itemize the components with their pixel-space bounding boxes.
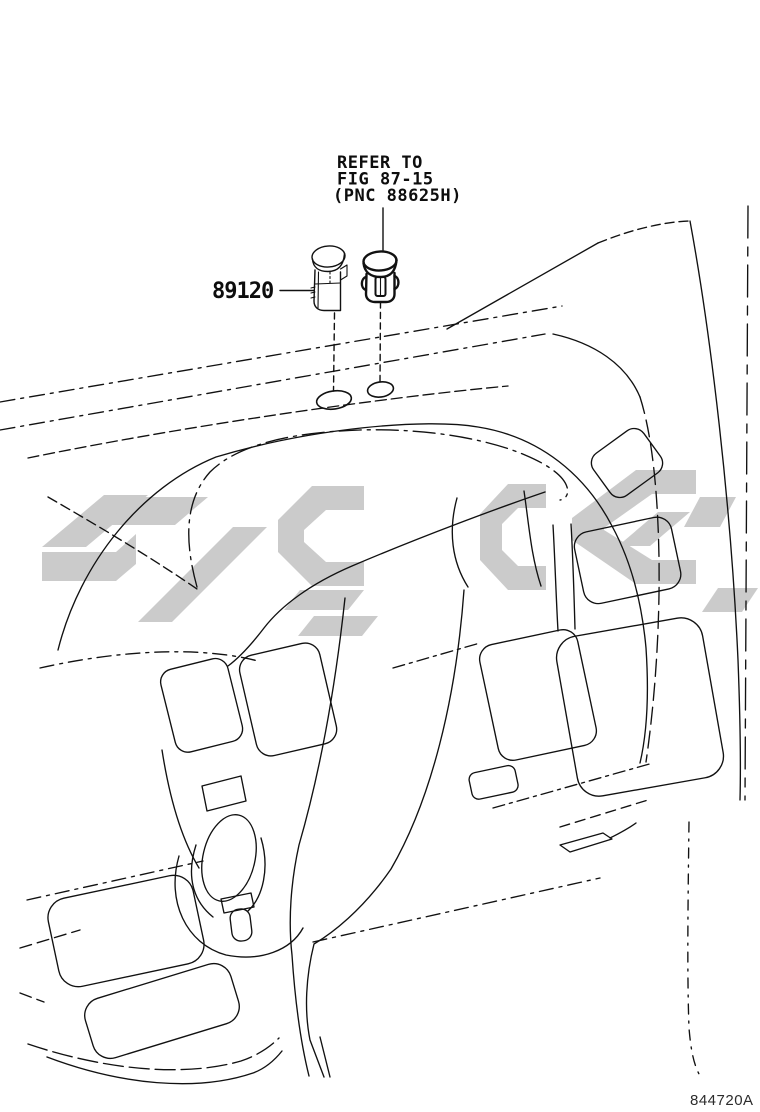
watermark-glyph <box>480 484 546 590</box>
watermark-glyph <box>138 527 267 622</box>
console-left-edge <box>290 598 345 1076</box>
sensor-cap-rim <box>313 254 345 272</box>
watermark-glyph <box>278 486 364 586</box>
trim-piece-edge <box>610 823 636 838</box>
dash-lower-line <box>493 763 653 808</box>
a-pillar-outer <box>745 206 748 800</box>
radio-opening <box>477 627 599 763</box>
knee-panel-lower <box>80 959 243 1063</box>
watermark-glyph <box>702 588 758 612</box>
left-dash-edge <box>40 652 258 668</box>
lower-cubby-opening <box>468 764 520 800</box>
center-pod-left <box>452 498 468 587</box>
kick-panel-line <box>20 930 80 948</box>
leader-line-dashed-right <box>380 302 381 383</box>
center-channel <box>553 525 558 631</box>
dashboard-line-art <box>0 206 748 1084</box>
sensor-part-drawing <box>311 245 347 311</box>
part-number-label: 89120 <box>212 279 273 304</box>
glove-box-opening <box>553 614 727 799</box>
callout-group <box>280 208 398 411</box>
watermark-glyph <box>284 590 364 610</box>
console-base-curve <box>28 1038 279 1070</box>
floor-line <box>560 800 648 827</box>
sensor-cap <box>311 245 345 268</box>
parts-diagram-canvas: REFER TO FIG 87-15 (PNC 88625H) 89120 84… <box>0 0 760 1112</box>
shift-boot-outer <box>175 856 303 957</box>
mounting-hole-right <box>367 380 395 398</box>
reference-note-line-3: (PNC 88625H) <box>333 186 462 206</box>
sensor-body-edge <box>318 272 319 308</box>
leader-line-dashed-left <box>334 313 335 391</box>
switch-opening <box>202 776 246 811</box>
windshield-corner <box>553 334 640 397</box>
mounting-hole-left <box>315 389 352 412</box>
clip-cap <box>363 251 397 272</box>
watermark-glyph <box>572 470 696 584</box>
watermark-logo <box>42 470 758 636</box>
shift-knob <box>194 809 264 906</box>
figure-code: 844720A <box>690 1092 754 1109</box>
sensor-tab <box>341 265 348 280</box>
dash-lower-line <box>393 643 480 668</box>
cluster-lower-edge <box>162 750 199 868</box>
console-base-curve <box>47 1051 282 1084</box>
parts-diagram-page: REFER TO FIG 87-15 (PNC 88625H) 89120 84… <box>0 0 760 1112</box>
dash-top-edge <box>28 386 508 458</box>
shift-stem <box>229 908 253 942</box>
kick-panel-line <box>20 993 44 1002</box>
console-right-edge <box>307 590 464 1077</box>
cowl-line <box>0 306 562 402</box>
watermark-glyph <box>298 616 378 636</box>
clip-part-drawing <box>362 251 399 302</box>
trim-piece <box>560 833 612 852</box>
cluster-opening-left <box>158 656 246 755</box>
windshield-right-edge <box>447 243 598 329</box>
door-edge-line <box>688 822 699 1074</box>
windshield-top-edge <box>598 221 689 243</box>
